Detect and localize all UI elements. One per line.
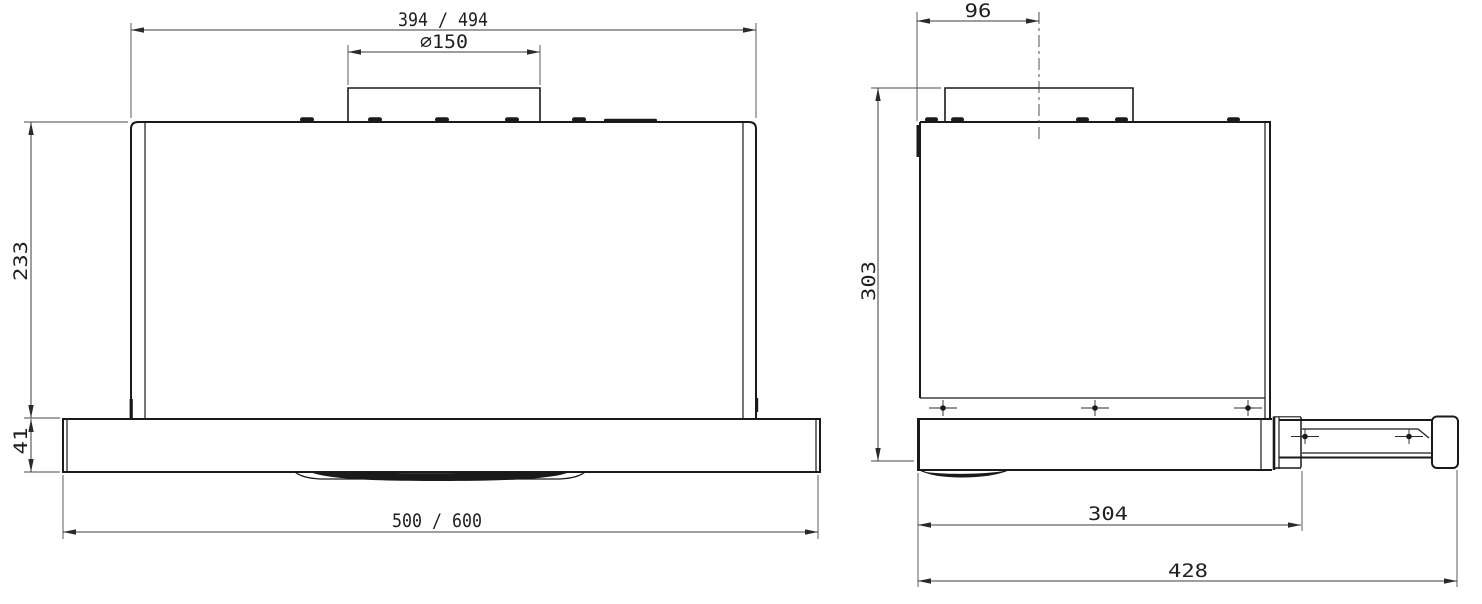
technical-drawing-page: 394 / 494 ⌀150 233 41 — [0, 0, 1482, 604]
front-view: 394 / 494 ⌀150 233 41 — [10, 9, 820, 539]
side-handle — [921, 470, 1007, 477]
front-right-wall-foot — [755, 398, 758, 412]
cooker-hood-dimension-drawing: 394 / 494 ⌀150 233 41 — [0, 0, 1482, 604]
dim-label-duct-offset: 96 — [965, 0, 992, 22]
dim-side-extended-depth: 428 — [918, 470, 1457, 587]
dim-front-visor-height: 41 — [10, 419, 60, 472]
dim-front-body-height: 233 — [10, 122, 128, 418]
side-telescopic-rail — [1274, 417, 1458, 471]
screw-mark — [1234, 400, 1262, 416]
dim-label-extended-depth: 428 — [1168, 560, 1208, 582]
side-body — [917, 122, 1271, 419]
front-left-wall-foot — [130, 399, 133, 419]
screw-mark — [1291, 429, 1319, 444]
side-drawer — [917, 419, 1272, 477]
side-view: 96 303 304 428 — [858, 0, 1458, 587]
dim-label-top-width: 394 / 494 — [398, 9, 488, 31]
dim-label-visor-height: 41 — [10, 428, 32, 455]
dim-label-body-height: 233 — [10, 241, 32, 281]
dim-side-total-height: 303 — [858, 88, 941, 461]
side-fixing-strip — [917, 398, 1272, 419]
front-top-rail-tab — [604, 119, 657, 123]
dim-front-top-width: 394 / 494 — [131, 9, 756, 118]
dim-side-body-depth: 304 — [918, 471, 1302, 587]
front-handle — [295, 472, 585, 481]
side-rear-mount-tab — [917, 125, 921, 157]
dim-label-bottom-width: 500 / 600 — [392, 510, 482, 532]
dim-label-total-height: 303 — [858, 261, 880, 301]
rail-end-cap — [1432, 417, 1458, 469]
front-duct-stub — [348, 88, 540, 122]
side-duct-stub — [945, 12, 1133, 140]
dim-label-body-depth: 304 — [1088, 503, 1128, 525]
dim-front-bottom-width: 500 / 600 — [63, 475, 818, 539]
front-body — [130, 122, 759, 419]
dim-front-duct-diameter: ⌀150 — [348, 31, 540, 85]
dim-side-duct-offset: 96 — [917, 0, 1039, 121]
screw-mark — [929, 400, 957, 416]
screw-mark — [1395, 429, 1423, 444]
front-visor-panel — [63, 419, 820, 472]
screw-mark — [1081, 400, 1109, 416]
dim-label-duct-diameter: ⌀150 — [420, 31, 468, 53]
